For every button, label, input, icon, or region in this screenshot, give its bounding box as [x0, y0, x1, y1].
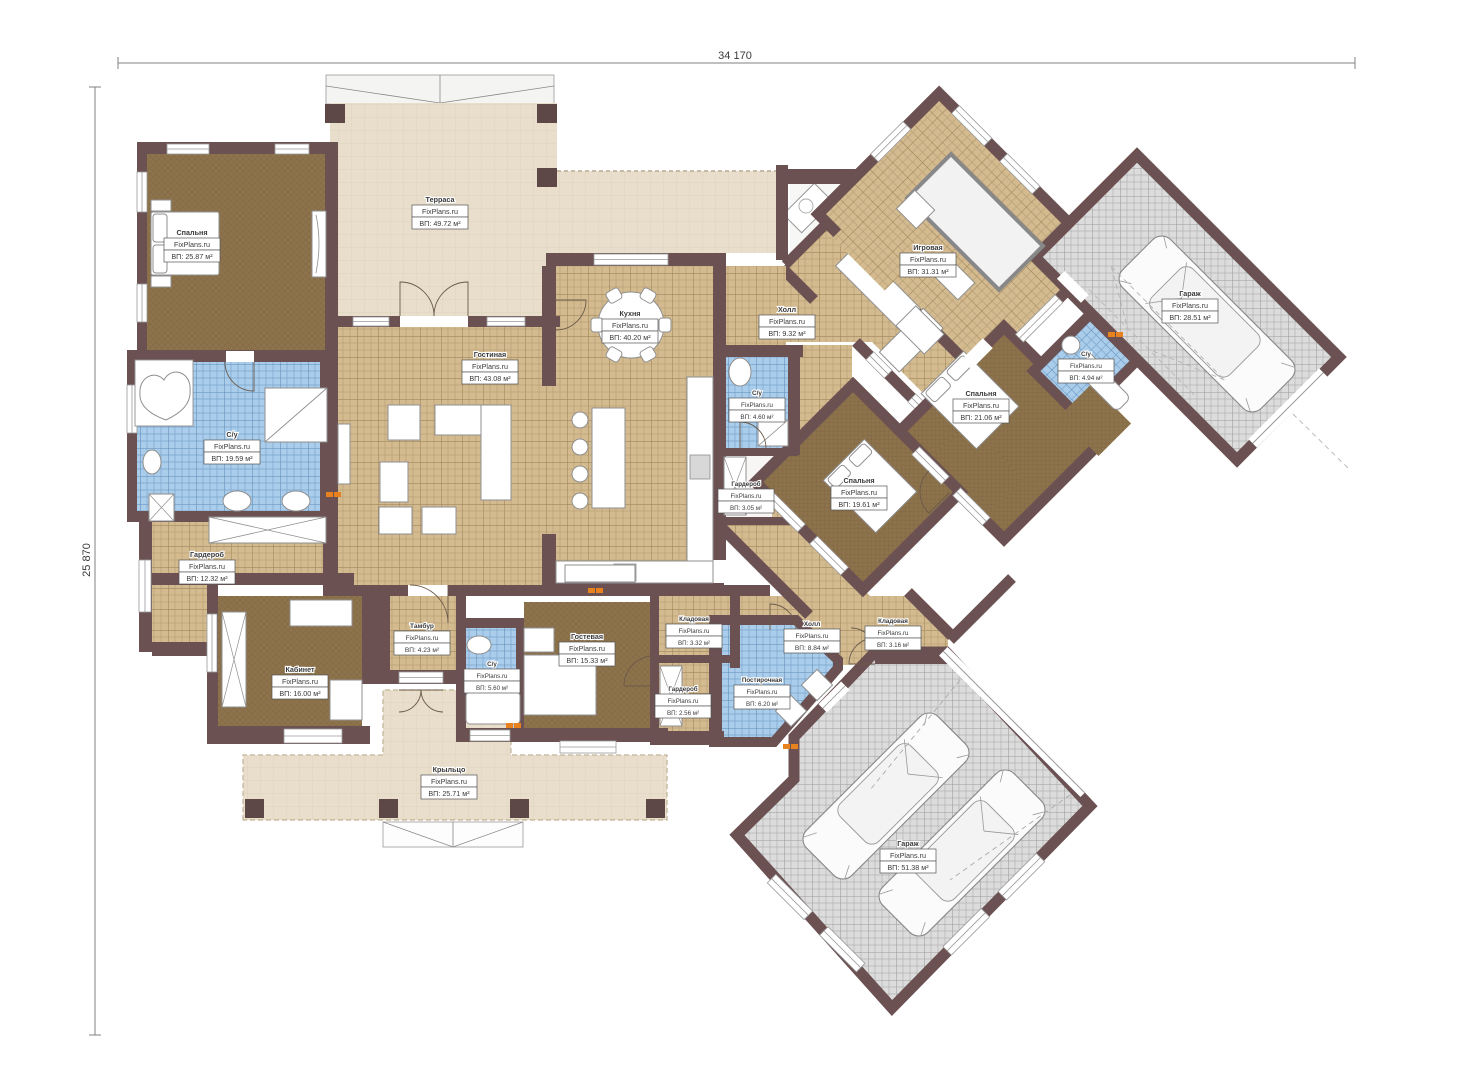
- svg-text:FixPlans.ru: FixPlans.ru: [612, 321, 648, 330]
- svg-text:ВП: 19.61 м²: ВП: 19.61 м²: [838, 500, 880, 509]
- svg-text:Гостиная: Гостиная: [474, 350, 506, 359]
- svg-text:Спальня: Спальня: [843, 476, 874, 485]
- svg-text:Кладовая: Кладовая: [679, 616, 709, 623]
- svg-text:FixPlans.ru: FixPlans.ru: [282, 677, 318, 686]
- svg-text:Игровая: Игровая: [913, 243, 942, 252]
- svg-text:FixPlans.ru: FixPlans.ru: [214, 442, 250, 451]
- svg-text:ВП: 4.23 м²: ВП: 4.23 м²: [405, 647, 440, 654]
- svg-text:Гараж: Гараж: [897, 839, 919, 848]
- svg-text:Кладовая: Кладовая: [878, 618, 908, 625]
- svg-text:FixPlans.ru: FixPlans.ru: [841, 488, 877, 497]
- svg-text:ВП: 3.32 м²: ВП: 3.32 м²: [678, 640, 710, 647]
- svg-text:FixPlans.ru: FixPlans.ru: [472, 362, 508, 371]
- svg-text:FixPlans.ru: FixPlans.ru: [1172, 301, 1208, 310]
- svg-text:FixPlans.ru: FixPlans.ru: [796, 633, 829, 640]
- svg-text:FixPlans.ru: FixPlans.ru: [189, 562, 225, 571]
- svg-text:FixPlans.ru: FixPlans.ru: [963, 401, 999, 410]
- svg-text:Терраса: Терраса: [426, 195, 456, 204]
- svg-text:FixPlans.ru: FixPlans.ru: [668, 698, 700, 705]
- svg-text:ВП: 4.60 м²: ВП: 4.60 м²: [740, 414, 773, 421]
- svg-text:FixPlans.ru: FixPlans.ru: [731, 493, 763, 500]
- svg-text:FixPlans.ru: FixPlans.ru: [878, 630, 910, 637]
- svg-text:34 170: 34 170: [718, 50, 752, 62]
- svg-text:ВП: 28.51 м²: ВП: 28.51 м²: [1169, 313, 1211, 322]
- svg-text:Кухня: Кухня: [619, 309, 640, 318]
- svg-text:ВП: 5.60 м²: ВП: 5.60 м²: [476, 685, 508, 692]
- svg-text:С/у: С/у: [752, 390, 762, 397]
- svg-text:ВП: 21.06 м²: ВП: 21.06 м²: [960, 413, 1002, 422]
- svg-text:Постирочная: Постирочная: [742, 677, 783, 684]
- svg-text:ВП: 2.56 м²: ВП: 2.56 м²: [667, 710, 699, 717]
- svg-text:Крыльцо: Крыльцо: [433, 765, 466, 774]
- svg-text:ВП: 19.59 м²: ВП: 19.59 м²: [211, 454, 253, 463]
- svg-text:Гардероб: Гардероб: [190, 550, 225, 559]
- svg-text:FixPlans.ru: FixPlans.ru: [406, 635, 439, 642]
- svg-text:FixPlans.ru: FixPlans.ru: [422, 207, 458, 216]
- svg-text:ВП: 31.31 м²: ВП: 31.31 м²: [907, 267, 949, 276]
- svg-text:ВП: 12.32 м²: ВП: 12.32 м²: [186, 574, 228, 583]
- svg-text:С/у: С/у: [226, 430, 237, 439]
- svg-text:С/у: С/у: [487, 661, 497, 668]
- svg-text:FixPlans.ru: FixPlans.ru: [741, 402, 773, 409]
- svg-text:ВП: 25.87 м²: ВП: 25.87 м²: [171, 252, 213, 261]
- svg-text:ВП: 9.32 м²: ВП: 9.32 м²: [768, 329, 806, 338]
- svg-text:ВП: 3.16 м²: ВП: 3.16 м²: [877, 642, 909, 649]
- svg-text:Холл: Холл: [804, 621, 821, 628]
- svg-text:ВП: 16.00 м²: ВП: 16.00 м²: [279, 689, 321, 698]
- svg-text:ВП: 25.71 м²: ВП: 25.71 м²: [428, 789, 470, 798]
- svg-text:FixPlans.ru: FixPlans.ru: [890, 851, 926, 860]
- svg-text:Гараж: Гараж: [1179, 289, 1201, 298]
- svg-text:FixPlans.ru: FixPlans.ru: [569, 644, 605, 653]
- svg-text:ВП: 40.20 м²: ВП: 40.20 м²: [609, 333, 651, 342]
- svg-text:FixPlans.ru: FixPlans.ru: [174, 240, 210, 249]
- svg-text:Тамбур: Тамбур: [410, 622, 434, 630]
- svg-text:FixPlans.ru: FixPlans.ru: [431, 777, 467, 786]
- svg-text:FixPlans.ru: FixPlans.ru: [1070, 363, 1102, 370]
- svg-text:ВП: 15.33 м²: ВП: 15.33 м²: [566, 656, 608, 665]
- svg-text:Спальня: Спальня: [176, 228, 207, 237]
- svg-text:ВП: 43.08 м²: ВП: 43.08 м²: [469, 374, 511, 383]
- svg-text:25 870: 25 870: [81, 543, 93, 577]
- svg-text:ВП: 6.20 м²: ВП: 6.20 м²: [746, 701, 778, 708]
- svg-text:Гостевая: Гостевая: [571, 632, 603, 641]
- svg-text:FixPlans.ru: FixPlans.ru: [477, 673, 509, 680]
- svg-text:ВП: 4.94 м²: ВП: 4.94 м²: [1069, 375, 1102, 382]
- svg-text:ВП: 3.05 м²: ВП: 3.05 м²: [730, 505, 762, 512]
- svg-text:Спальня: Спальня: [965, 389, 996, 398]
- svg-text:Гардероб: Гардероб: [731, 481, 760, 488]
- svg-text:Кабинет: Кабинет: [285, 665, 315, 674]
- svg-text:FixPlans.ru: FixPlans.ru: [747, 689, 779, 696]
- svg-text:ВП: 8.84 м²: ВП: 8.84 м²: [795, 645, 830, 652]
- svg-text:С/у: С/у: [1081, 351, 1091, 358]
- svg-text:Гардероб: Гардероб: [668, 686, 697, 693]
- svg-text:ВП: 49.72 м²: ВП: 49.72 м²: [419, 219, 461, 228]
- svg-text:FixPlans.ru: FixPlans.ru: [910, 255, 946, 264]
- svg-text:FixPlans.ru: FixPlans.ru: [679, 628, 711, 635]
- svg-text:FixPlans.ru: FixPlans.ru: [769, 317, 805, 326]
- svg-text:ВП: 51.38 м²: ВП: 51.38 м²: [887, 863, 929, 872]
- svg-text:Холл: Холл: [778, 305, 796, 314]
